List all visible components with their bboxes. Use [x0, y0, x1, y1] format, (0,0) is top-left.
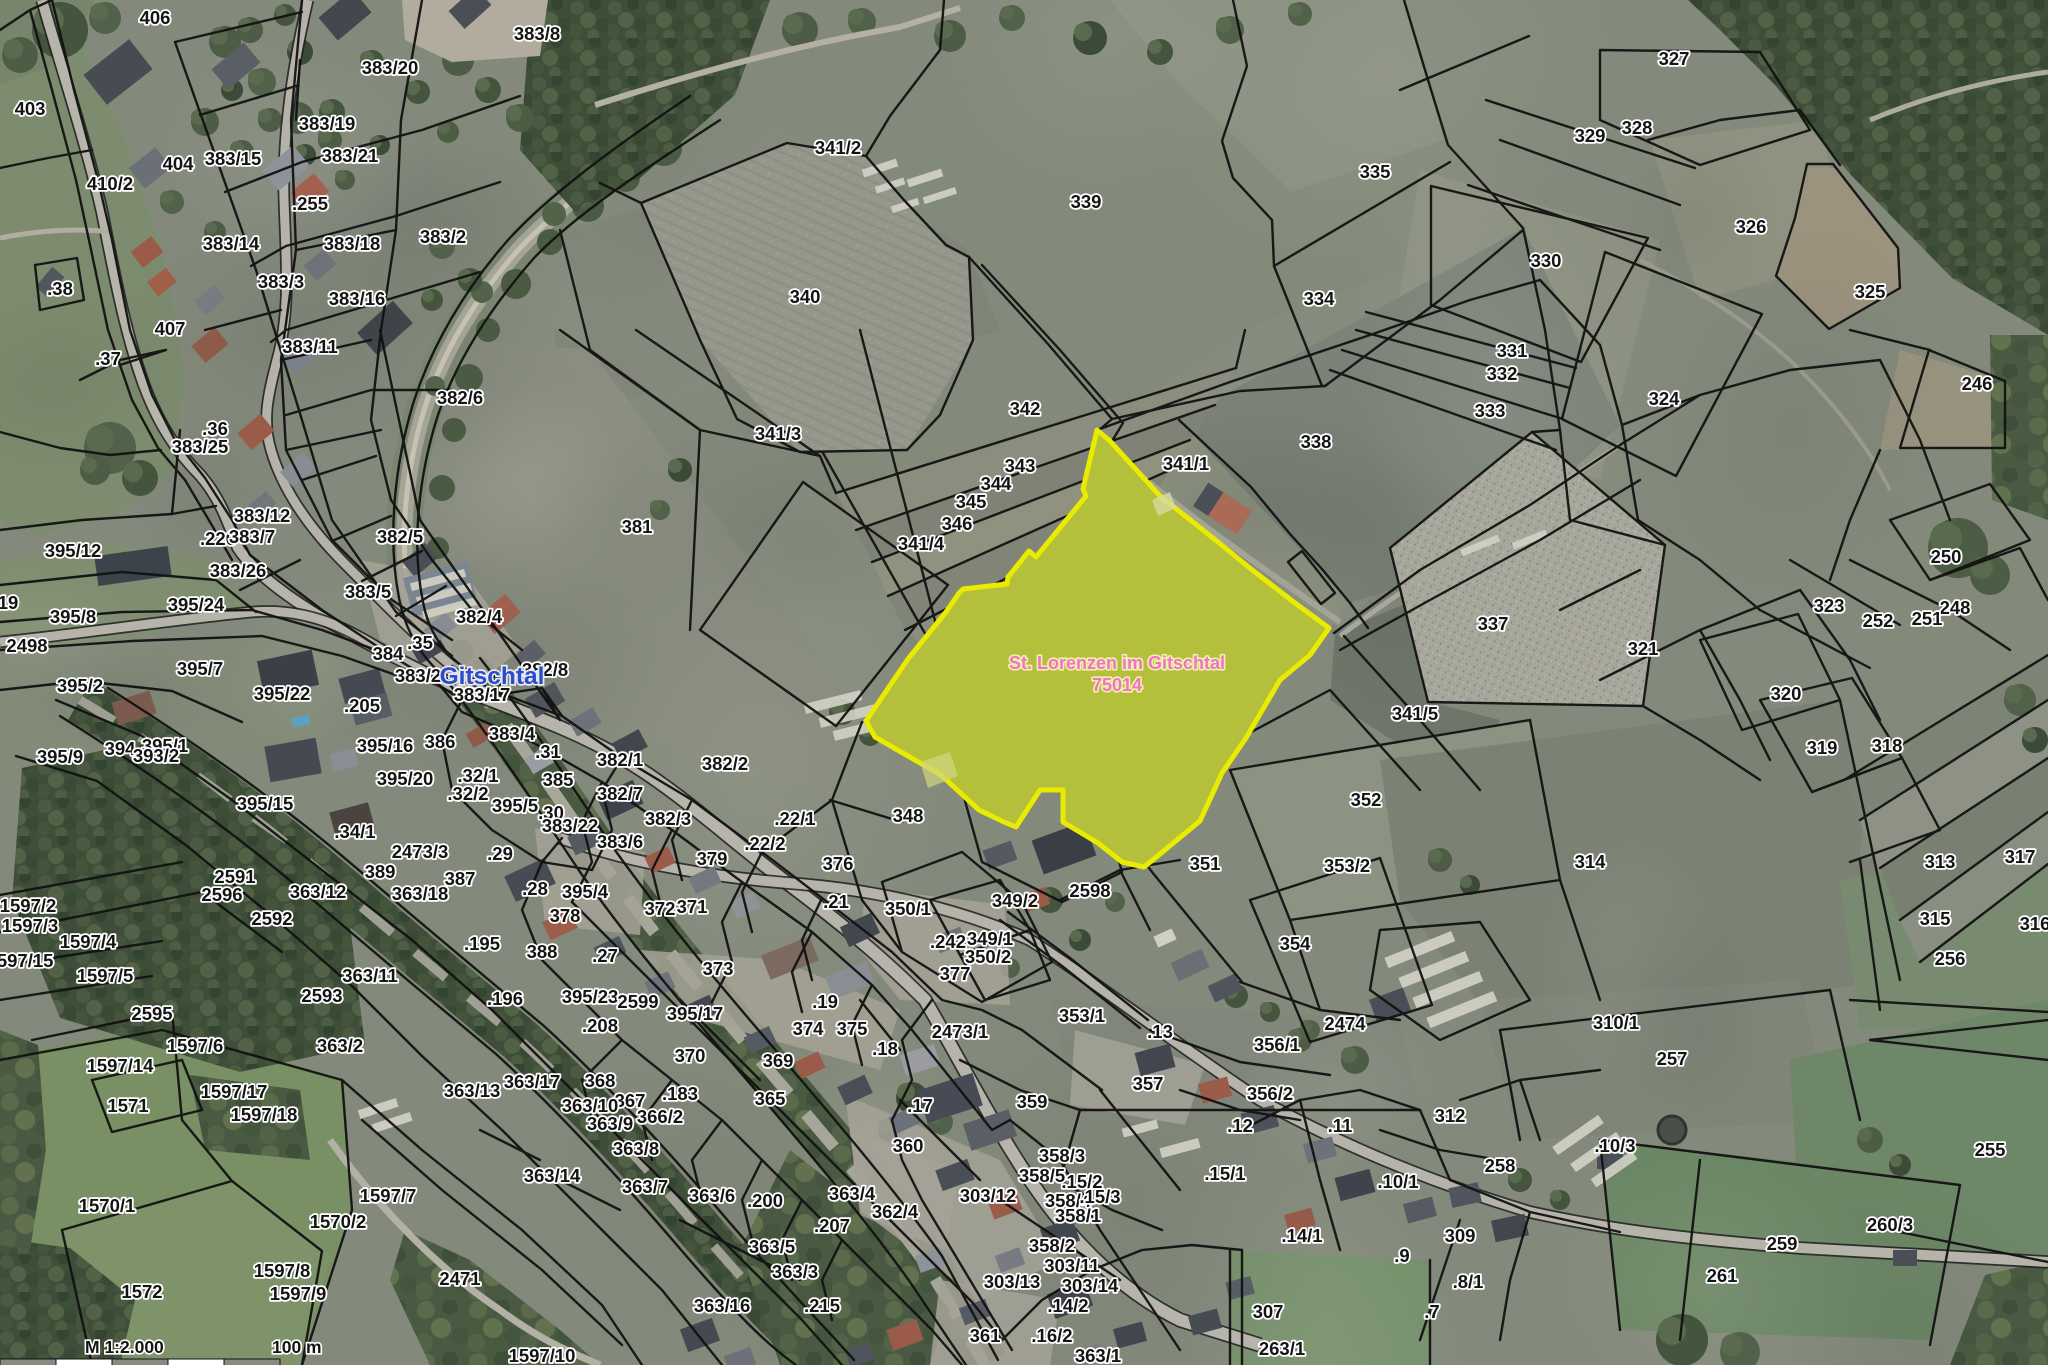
svg-text:307: 307 [1253, 1301, 1284, 1322]
svg-text:386: 386 [425, 731, 456, 752]
svg-text:.242: .242 [930, 931, 966, 952]
svg-text:381: 381 [622, 516, 653, 537]
svg-text:358/2: 358/2 [1029, 1235, 1075, 1256]
svg-text:395/7: 395/7 [177, 658, 223, 679]
svg-text:1597/9: 1597/9 [270, 1283, 327, 1304]
svg-text:383/22: 383/22 [542, 815, 599, 836]
svg-text:410/2: 410/2 [87, 173, 133, 194]
svg-text:382/3: 382/3 [645, 808, 691, 829]
svg-text:328: 328 [1622, 117, 1653, 138]
svg-text:312: 312 [1435, 1105, 1466, 1126]
svg-text:395/9: 395/9 [37, 746, 83, 767]
svg-text:363/13: 363/13 [444, 1080, 501, 1101]
svg-text:.208: .208 [582, 1015, 618, 1036]
svg-text:2596: 2596 [201, 884, 242, 905]
svg-text:383/20: 383/20 [362, 57, 419, 78]
svg-text:356/1: 356/1 [1254, 1034, 1300, 1055]
svg-text:252: 252 [1863, 610, 1894, 631]
svg-text:1570/2: 1570/2 [310, 1211, 367, 1232]
svg-text:.215: .215 [804, 1295, 840, 1316]
svg-text:382/4: 382/4 [456, 606, 503, 627]
svg-text:.12: .12 [1227, 1115, 1253, 1136]
svg-text:361: 361 [970, 1325, 1001, 1346]
svg-text:370: 370 [675, 1045, 706, 1066]
svg-text:.27: .27 [592, 945, 618, 966]
svg-text:395/2: 395/2 [57, 675, 103, 696]
svg-text:1597/8: 1597/8 [254, 1260, 311, 1281]
svg-text:310/1: 310/1 [1593, 1012, 1639, 1033]
svg-text:.35: .35 [407, 632, 433, 653]
svg-text:395/15: 395/15 [237, 793, 294, 814]
svg-text:330: 330 [1531, 250, 1562, 271]
svg-text:.11: .11 [1328, 1115, 1353, 1136]
svg-text:.32/2: .32/2 [447, 783, 488, 804]
svg-text:383/14: 383/14 [203, 233, 260, 254]
svg-text:341/1: 341/1 [1163, 453, 1209, 474]
svg-text:395/24: 395/24 [168, 594, 225, 615]
svg-text:.196: .196 [487, 988, 523, 1009]
svg-text:303/14: 303/14 [1062, 1275, 1119, 1296]
svg-text:389: 389 [365, 861, 396, 882]
svg-text:256: 256 [1935, 948, 1966, 969]
svg-text:.28: .28 [522, 878, 548, 899]
svg-text:334: 334 [1304, 288, 1336, 309]
svg-text:346: 346 [942, 513, 973, 534]
svg-text:363/5: 363/5 [749, 1236, 795, 1257]
svg-text:371: 371 [677, 896, 708, 917]
svg-text:363/12: 363/12 [290, 881, 347, 902]
svg-text:354: 354 [1280, 933, 1312, 954]
svg-text:383/19: 383/19 [299, 113, 356, 134]
svg-text:.10/3: .10/3 [1594, 1135, 1635, 1156]
svg-text:.13: .13 [1147, 1021, 1173, 1042]
svg-text:363/17: 363/17 [504, 1071, 561, 1092]
svg-text:1597/7: 1597/7 [360, 1185, 417, 1206]
svg-text:372: 372 [645, 898, 676, 919]
svg-text:383/15: 383/15 [205, 148, 262, 169]
svg-text:363/14: 363/14 [524, 1165, 581, 1186]
svg-text:1597/17: 1597/17 [201, 1081, 268, 1102]
svg-text:345: 345 [956, 491, 987, 512]
svg-text:.22/2: .22/2 [744, 833, 785, 854]
svg-text:Gitschtal: Gitschtal [440, 663, 545, 690]
svg-text:358/5: 358/5 [1019, 1165, 1065, 1186]
svg-text:.195: .195 [464, 933, 500, 954]
svg-text:342: 342 [1010, 398, 1041, 419]
svg-text:.21: .21 [823, 891, 849, 912]
svg-text:340: 340 [790, 286, 821, 307]
svg-text:388: 388 [527, 941, 558, 962]
svg-text:383/12: 383/12 [234, 505, 291, 526]
svg-text:315: 315 [1920, 908, 1951, 929]
svg-text:339: 339 [1071, 191, 1102, 212]
svg-text:375: 375 [837, 1018, 868, 1039]
svg-text:326: 326 [1736, 216, 1767, 237]
svg-text:383/16: 383/16 [329, 288, 386, 309]
svg-text:314: 314 [1575, 851, 1607, 872]
svg-text:348: 348 [893, 805, 924, 826]
svg-text:248: 248 [1940, 597, 1971, 618]
svg-text:366/2: 366/2 [637, 1106, 683, 1127]
svg-text:1597/4: 1597/4 [60, 931, 117, 952]
svg-text:338: 338 [1301, 431, 1332, 452]
svg-text:383/3: 383/3 [258, 271, 304, 292]
svg-text:2593: 2593 [301, 985, 342, 1006]
svg-text:303/11: 303/11 [1044, 1255, 1100, 1276]
svg-text:383/7: 383/7 [229, 526, 275, 547]
svg-text:341/4: 341/4 [898, 533, 945, 554]
svg-text:325: 325 [1855, 281, 1886, 302]
svg-text:353/1: 353/1 [1059, 1005, 1105, 1026]
svg-text:395/12: 395/12 [45, 540, 102, 561]
svg-text:378: 378 [550, 905, 581, 926]
svg-text:363/4: 363/4 [829, 1183, 876, 1204]
svg-text:383/4: 383/4 [489, 723, 536, 744]
svg-text:383/11: 383/11 [282, 336, 338, 357]
svg-text:.22/1: .22/1 [774, 808, 815, 829]
svg-text:383/25: 383/25 [172, 436, 229, 457]
svg-text:.10/1: .10/1 [1377, 1171, 1418, 1192]
svg-text:407: 407 [155, 318, 186, 339]
svg-text:1570/1: 1570/1 [79, 1195, 136, 1216]
svg-text:350/2: 350/2 [965, 946, 1011, 967]
svg-text:1572: 1572 [121, 1281, 162, 1302]
svg-text:319: 319 [1807, 737, 1838, 758]
svg-text:383/21: 383/21 [322, 145, 379, 166]
svg-text:.17: .17 [907, 1095, 933, 1116]
svg-text:383/2: 383/2 [420, 226, 466, 247]
svg-text:384: 384 [373, 643, 405, 664]
svg-text:.18: .18 [872, 1038, 898, 1059]
svg-text:.31: .31 [535, 741, 561, 762]
svg-text:335: 335 [1360, 161, 1391, 182]
svg-text:333: 333 [1475, 400, 1506, 421]
svg-text:1597/14: 1597/14 [87, 1055, 155, 1076]
svg-text:395/22: 395/22 [254, 683, 311, 704]
svg-text:373: 373 [703, 958, 734, 979]
svg-text:332: 332 [1487, 363, 1518, 384]
svg-text:.38: .38 [47, 278, 73, 299]
svg-text:318: 318 [1872, 735, 1903, 756]
svg-text:395/4: 395/4 [562, 881, 609, 902]
svg-text:363/6: 363/6 [689, 1185, 735, 1206]
svg-text:.34/1: .34/1 [334, 821, 375, 842]
svg-text:317: 317 [2005, 846, 2036, 867]
svg-text:19: 19 [0, 592, 18, 613]
svg-text:368: 368 [585, 1070, 616, 1091]
svg-text:363/9: 363/9 [587, 1113, 633, 1134]
svg-text:259: 259 [1767, 1233, 1798, 1254]
svg-text:323: 323 [1814, 595, 1845, 616]
svg-text:1597/3: 1597/3 [2, 915, 59, 936]
svg-text:403: 403 [15, 98, 46, 119]
svg-text:2471: 2471 [439, 1268, 480, 1289]
svg-text:337: 337 [1478, 613, 1509, 634]
svg-text:303/12: 303/12 [960, 1185, 1017, 1206]
svg-text:341/5: 341/5 [1392, 703, 1438, 724]
svg-text:383/6: 383/6 [597, 831, 643, 852]
svg-text:369: 369 [763, 1050, 794, 1071]
svg-text:363/16: 363/16 [694, 1295, 751, 1316]
svg-text:.7: .7 [1424, 1301, 1439, 1322]
svg-text:383/8: 383/8 [514, 23, 560, 44]
svg-text:2473/1: 2473/1 [932, 1021, 989, 1042]
svg-text:1597/10: 1597/10 [509, 1345, 576, 1365]
svg-text:331: 331 [1497, 340, 1528, 361]
svg-text:363/2: 363/2 [317, 1035, 363, 1056]
svg-text:100 m: 100 m [272, 1337, 322, 1357]
svg-text:362/4: 362/4 [872, 1201, 919, 1222]
svg-text:.205: .205 [344, 695, 380, 716]
svg-text:255: 255 [1975, 1139, 2006, 1160]
svg-text:246: 246 [1962, 373, 1993, 394]
svg-text:395/23: 395/23 [562, 986, 619, 1007]
svg-text:316: 316 [2020, 913, 2048, 934]
svg-text:260/3: 260/3 [1867, 1214, 1913, 1235]
svg-text:321: 321 [1628, 638, 1659, 659]
svg-text:1597/18: 1597/18 [231, 1104, 298, 1125]
svg-text:313: 313 [1925, 851, 1956, 872]
svg-text:263/1: 263/1 [1259, 1338, 1305, 1359]
svg-text:383/26: 383/26 [210, 560, 267, 581]
svg-text:363/11: 363/11 [342, 965, 398, 986]
svg-text:393/2: 393/2 [133, 745, 179, 766]
svg-text:395/20: 395/20 [377, 768, 434, 789]
svg-text:363/3: 363/3 [772, 1261, 818, 1282]
svg-text:357: 357 [1133, 1073, 1164, 1094]
svg-text:374: 374 [793, 1018, 825, 1039]
svg-text:250: 250 [1931, 546, 1962, 567]
svg-text:385: 385 [543, 769, 574, 790]
svg-text:382/1: 382/1 [597, 749, 643, 770]
svg-text:257: 257 [1657, 1048, 1688, 1069]
svg-text:350/1: 350/1 [885, 898, 931, 919]
svg-text:2592: 2592 [251, 908, 292, 929]
svg-text:309: 309 [1445, 1225, 1476, 1246]
svg-text:.16/2: .16/2 [1031, 1325, 1072, 1346]
svg-text:2473/3: 2473/3 [392, 841, 449, 862]
svg-text:1571: 1571 [107, 1095, 148, 1116]
svg-text:382/2: 382/2 [702, 753, 748, 774]
svg-text:353/2: 353/2 [1324, 855, 1370, 876]
svg-text:395/8: 395/8 [50, 606, 96, 627]
svg-text:.8/1: .8/1 [1453, 1271, 1484, 1292]
svg-text:2598: 2598 [1069, 880, 1110, 901]
svg-text:352: 352 [1351, 789, 1382, 810]
svg-text:359: 359 [1017, 1091, 1048, 1112]
svg-text:.255: .255 [292, 193, 328, 214]
svg-text:358/1: 358/1 [1055, 1205, 1101, 1226]
svg-text:363/7: 363/7 [622, 1176, 668, 1197]
svg-text:2599: 2599 [617, 991, 658, 1012]
svg-text:251: 251 [1912, 608, 1943, 629]
svg-text:406: 406 [140, 7, 171, 28]
svg-text:341/3: 341/3 [755, 423, 801, 444]
svg-text:2498: 2498 [6, 635, 47, 656]
svg-text:363/8: 363/8 [613, 1138, 659, 1159]
svg-text:383/18: 383/18 [324, 233, 381, 254]
svg-text:303/13: 303/13 [984, 1271, 1041, 1292]
svg-text:2474: 2474 [1324, 1013, 1366, 1034]
svg-text:1597/2: 1597/2 [0, 895, 56, 916]
svg-text:356/2: 356/2 [1247, 1083, 1293, 1104]
svg-text:382/7: 382/7 [597, 783, 643, 804]
svg-text:1597/6: 1597/6 [167, 1035, 224, 1056]
svg-text:.14/2: .14/2 [1047, 1295, 1088, 1316]
svg-text:St. Lorenzen im Gitschtal: St. Lorenzen im Gitschtal [1009, 653, 1225, 673]
svg-text:.15/3: .15/3 [1079, 1186, 1120, 1207]
svg-text:360: 360 [893, 1135, 924, 1156]
svg-text:2595: 2595 [131, 1003, 172, 1024]
svg-text:261: 261 [1707, 1265, 1738, 1286]
svg-text:376: 376 [823, 853, 854, 874]
svg-text:395/5: 395/5 [492, 795, 538, 816]
svg-text:383/5: 383/5 [345, 581, 391, 602]
svg-text:.14/1: .14/1 [1281, 1225, 1322, 1246]
svg-text:395/16: 395/16 [357, 735, 414, 756]
svg-text:.9: .9 [1394, 1245, 1409, 1266]
svg-text:377: 377 [940, 963, 971, 984]
svg-text:.15/1: .15/1 [1204, 1163, 1245, 1184]
svg-text:382/6: 382/6 [437, 387, 483, 408]
svg-text:75014: 75014 [1092, 675, 1142, 695]
svg-text:324: 324 [1649, 388, 1681, 409]
svg-text:383/2: 383/2 [395, 665, 441, 686]
svg-text:M 1:2.000: M 1:2.000 [85, 1337, 164, 1357]
svg-text:.19: .19 [812, 991, 838, 1012]
svg-text:320: 320 [1771, 683, 1802, 704]
svg-text:.200: .200 [747, 1190, 783, 1211]
svg-text:363/18: 363/18 [392, 883, 449, 904]
svg-text:.207: .207 [814, 1215, 850, 1236]
svg-text:349/2: 349/2 [992, 890, 1038, 911]
svg-text:327: 327 [1659, 48, 1690, 69]
svg-text:351: 351 [1190, 853, 1221, 874]
svg-text:329: 329 [1575, 125, 1606, 146]
svg-text:394: 394 [105, 738, 137, 759]
svg-text:1597/15: 1597/15 [0, 950, 53, 971]
svg-text:395/17: 395/17 [667, 1003, 724, 1024]
svg-text:379: 379 [697, 848, 728, 869]
svg-text:382/5: 382/5 [377, 526, 423, 547]
svg-text:.37: .37 [95, 348, 121, 369]
svg-text:358/3: 358/3 [1039, 1145, 1085, 1166]
svg-text:387: 387 [445, 868, 476, 889]
svg-text:404: 404 [163, 153, 195, 174]
svg-text:.29: .29 [487, 843, 513, 864]
svg-text:1597/5: 1597/5 [77, 965, 134, 986]
svg-text:365: 365 [755, 1088, 786, 1109]
svg-text:363/1: 363/1 [1075, 1345, 1121, 1365]
svg-text:258: 258 [1485, 1155, 1516, 1176]
svg-text:341/2: 341/2 [815, 137, 861, 158]
svg-text:.183: .183 [662, 1083, 698, 1104]
